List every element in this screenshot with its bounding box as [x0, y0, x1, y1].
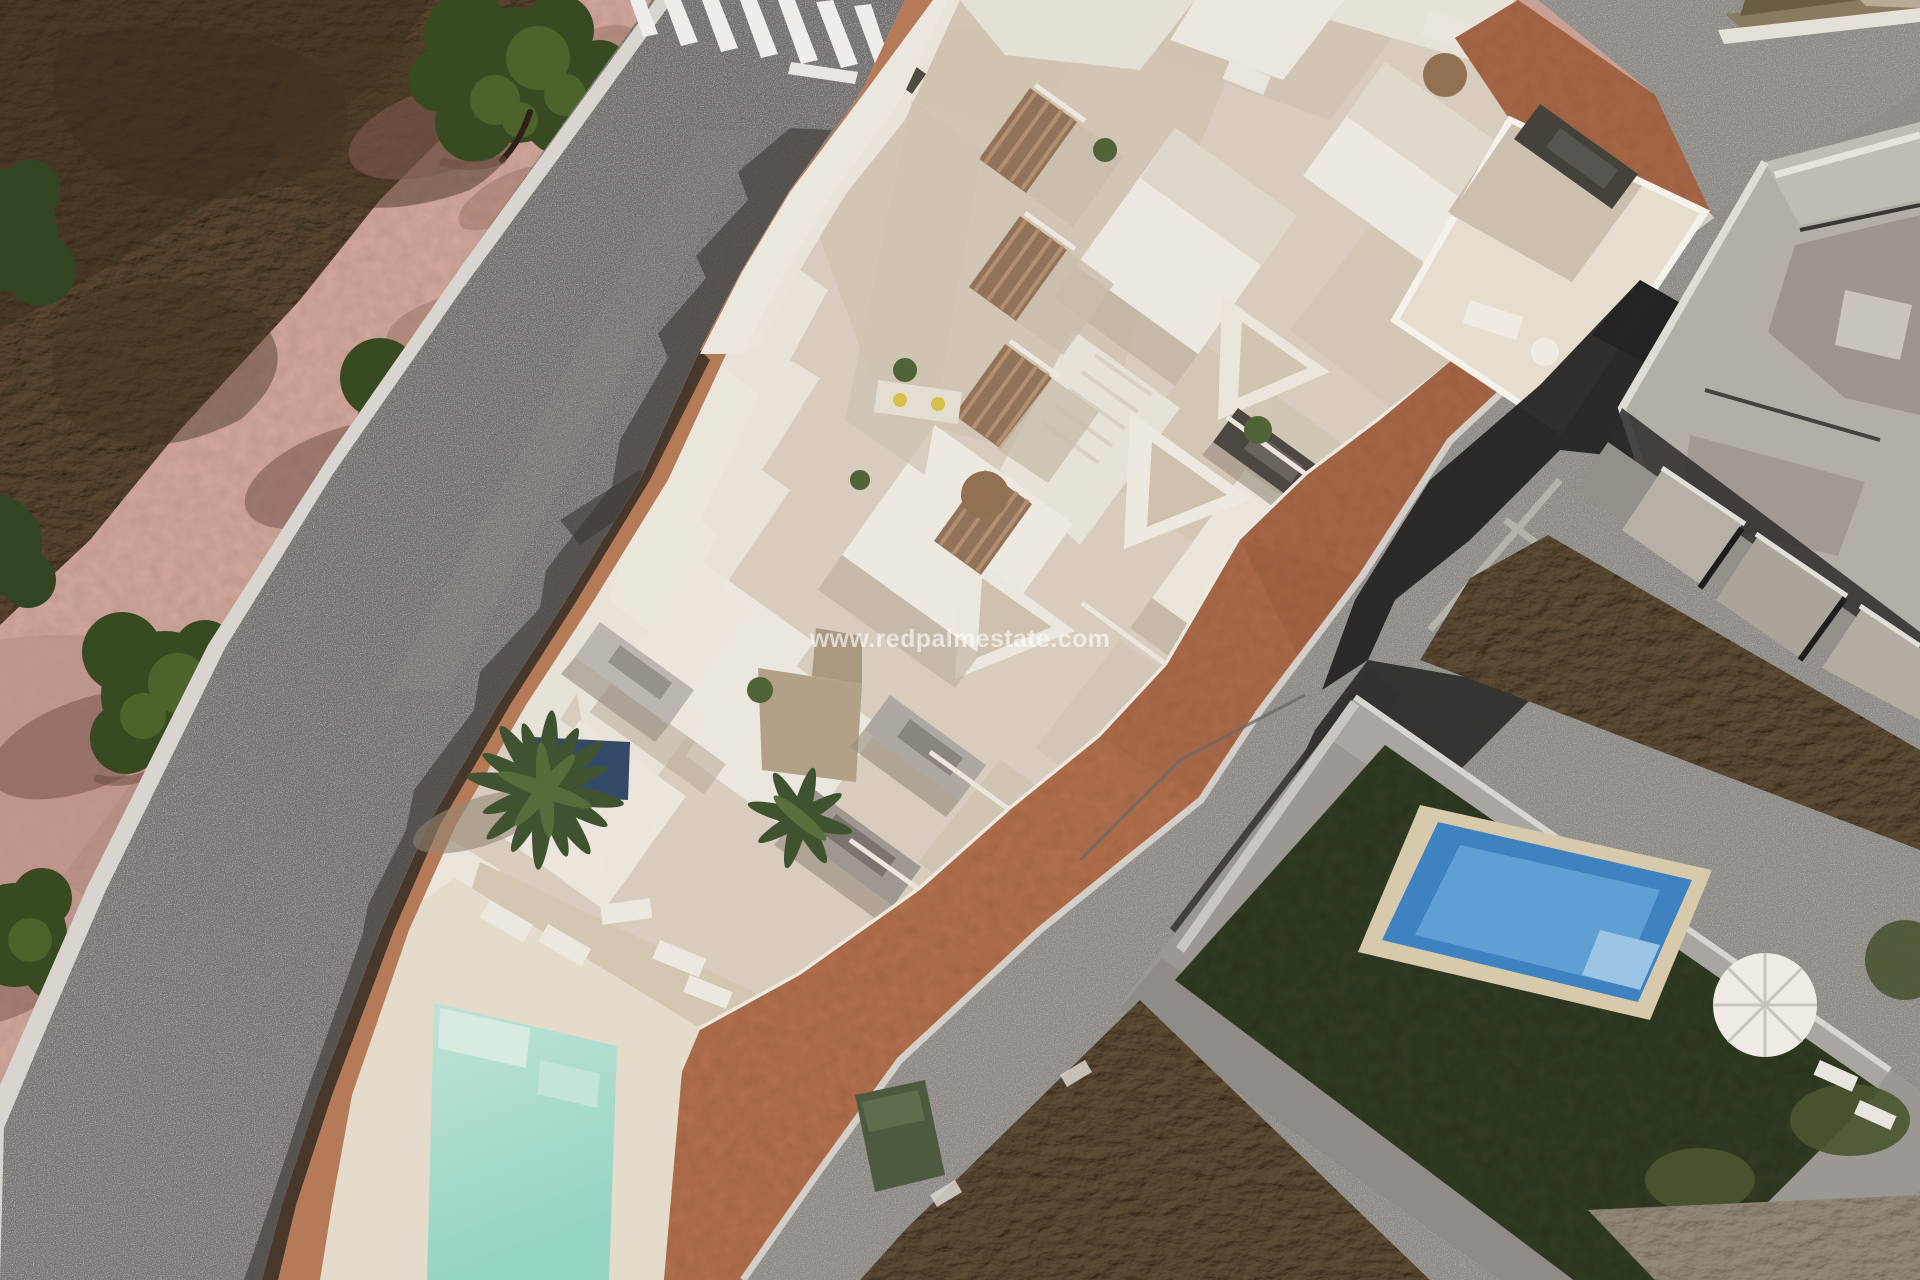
svg-text:www.redpalmestate.com: www.redpalmestate.com — [809, 625, 1111, 653]
